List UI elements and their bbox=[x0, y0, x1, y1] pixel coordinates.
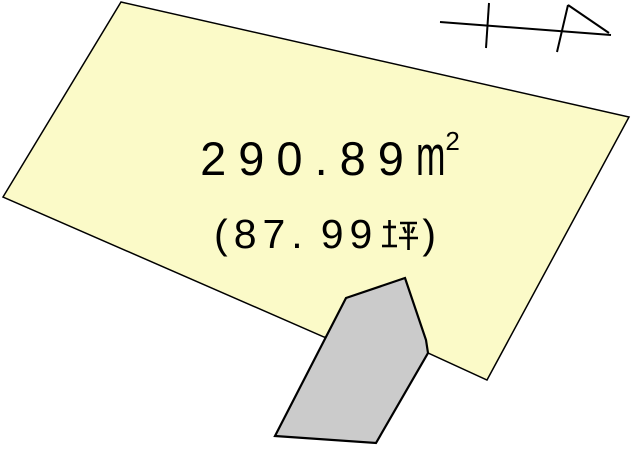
tsubo-int: 87 bbox=[234, 211, 292, 257]
tsubo-unit-glyph bbox=[380, 214, 418, 252]
north-arrow-shaft bbox=[440, 22, 611, 35]
land-plot-diagram: 290.89m2 (87.99 ) bbox=[0, 0, 632, 451]
area-label-tsubo: (87.99 ) bbox=[28, 211, 628, 257]
tsubo-close-paren: ) bbox=[422, 211, 442, 257]
tsubo-dot: . bbox=[291, 211, 320, 257]
north-arrow-icon bbox=[440, 3, 611, 52]
area-sqm-dot: . bbox=[315, 132, 340, 185]
area-sqm-int: 290 bbox=[200, 132, 314, 185]
tsubo-open-paren: ( bbox=[214, 211, 234, 257]
sqm-unit-m: m bbox=[416, 129, 445, 183]
area-sqm-frac: 89 bbox=[340, 132, 416, 185]
area-label-sqm: 290.89m2 bbox=[30, 129, 630, 193]
tsubo-glyph-strokes bbox=[382, 220, 418, 250]
north-arrow-head-top bbox=[568, 5, 609, 33]
tsubo-frac: 99 bbox=[321, 211, 379, 257]
sqm-unit-exponent: 2 bbox=[445, 126, 459, 156]
north-arrow-head-left bbox=[557, 5, 568, 52]
